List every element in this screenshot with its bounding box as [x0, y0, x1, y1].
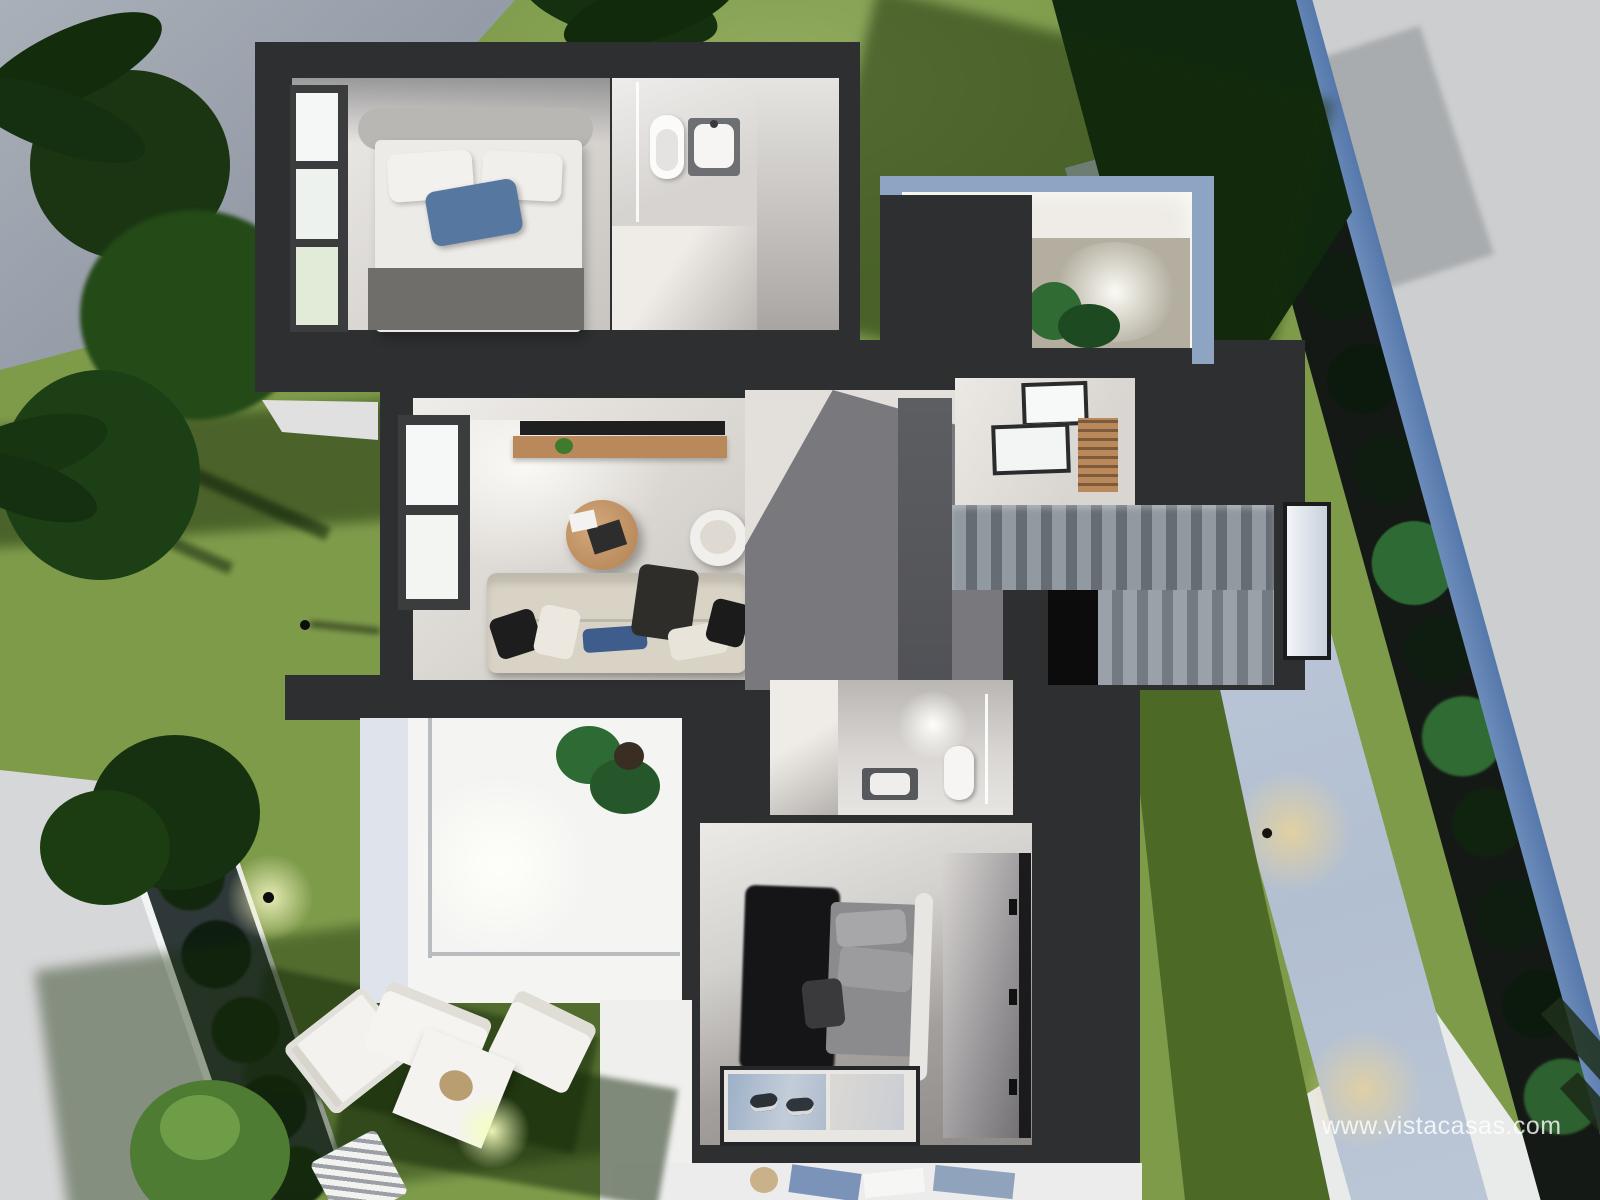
sofa-pillow-white: [532, 603, 582, 660]
wardrobe-handle: [1009, 1079, 1017, 1095]
wardrobe-dark-edge: [1019, 853, 1031, 1138]
stairs-lower-flight: [1098, 590, 1274, 685]
window-pane: [296, 93, 338, 161]
rug: [720, 1066, 920, 1146]
outdoor-cushion-blue: [933, 1165, 1015, 1199]
window-frame: [290, 85, 348, 332]
window-pane: [406, 515, 458, 599]
sofa: [487, 573, 747, 673]
garden-light-fixture: [263, 892, 274, 903]
terrace-frame-line: [428, 718, 432, 958]
hanging-chair: [690, 510, 747, 566]
courtyard-wall-overlap: [880, 195, 1032, 364]
bathroom-1-closet-wall: [757, 78, 839, 330]
sink-vanity: [862, 768, 918, 800]
toilet: [650, 115, 684, 179]
faucet: [710, 120, 718, 128]
courtyard-patio: [1032, 238, 1190, 348]
toilet: [944, 746, 974, 800]
shower-screen: [985, 694, 988, 804]
shower-screen: [636, 82, 639, 222]
bed-pillow: [837, 946, 915, 994]
watermark-text: www.vistacasas.com: [1322, 1112, 1562, 1141]
garden-light-fixture: [300, 620, 310, 630]
terrace-frame-line: [428, 952, 680, 956]
landing-glass: [1283, 502, 1331, 660]
slipper: [785, 1097, 814, 1116]
plant-pot: [614, 742, 644, 770]
outdoor-cushion-white: [863, 1168, 925, 1198]
chair-cushion: [700, 520, 736, 554]
tree-canopy: [40, 790, 170, 905]
tv-screen: [520, 421, 725, 435]
window-pane: [296, 169, 338, 239]
house-wall-terrace-edge: [285, 675, 685, 720]
courtyard-wall-bottom: [880, 348, 1192, 364]
stair-wall-marble: [898, 398, 952, 700]
coffee-table: [566, 500, 638, 570]
sink-basin: [870, 773, 910, 795]
toilet-seat: [656, 129, 678, 171]
bed-pillow: [835, 909, 907, 948]
sink-vanity: [688, 118, 740, 176]
terrace-bottom: [612, 1163, 1142, 1200]
dried-plant: [750, 1167, 778, 1193]
courtyard-plant: [1058, 304, 1120, 348]
garden-light-glow: [452, 1092, 532, 1170]
stairs-upper-flight: [952, 505, 1274, 590]
bed-throw-blanket: [368, 268, 584, 330]
tree-canopy-highlight: [160, 1095, 240, 1160]
skylight-pane: [991, 423, 1071, 476]
hall-top-floor: [612, 226, 757, 330]
bathroom-2-corridor: [770, 680, 838, 815]
window-pane: [296, 247, 338, 325]
sink-basin: [694, 124, 734, 168]
bed-pillow-dark: [801, 978, 846, 1030]
stair-railing-wood: [1078, 418, 1118, 492]
wardrobe: [943, 853, 1031, 1138]
tv-console: [513, 436, 727, 458]
aerial-floorplan-render: www.vistacasas.com: [0, 0, 1600, 1200]
window-pane: [406, 425, 458, 505]
wardrobe-handle: [1009, 989, 1017, 1005]
window-frame: [398, 415, 470, 610]
stair-gap-dark: [1048, 590, 1098, 685]
console-plant: [555, 438, 573, 454]
outdoor-cushion-blue: [788, 1164, 861, 1200]
rug-pattern-light: [830, 1074, 904, 1130]
wardrobe-handle: [1009, 899, 1017, 915]
